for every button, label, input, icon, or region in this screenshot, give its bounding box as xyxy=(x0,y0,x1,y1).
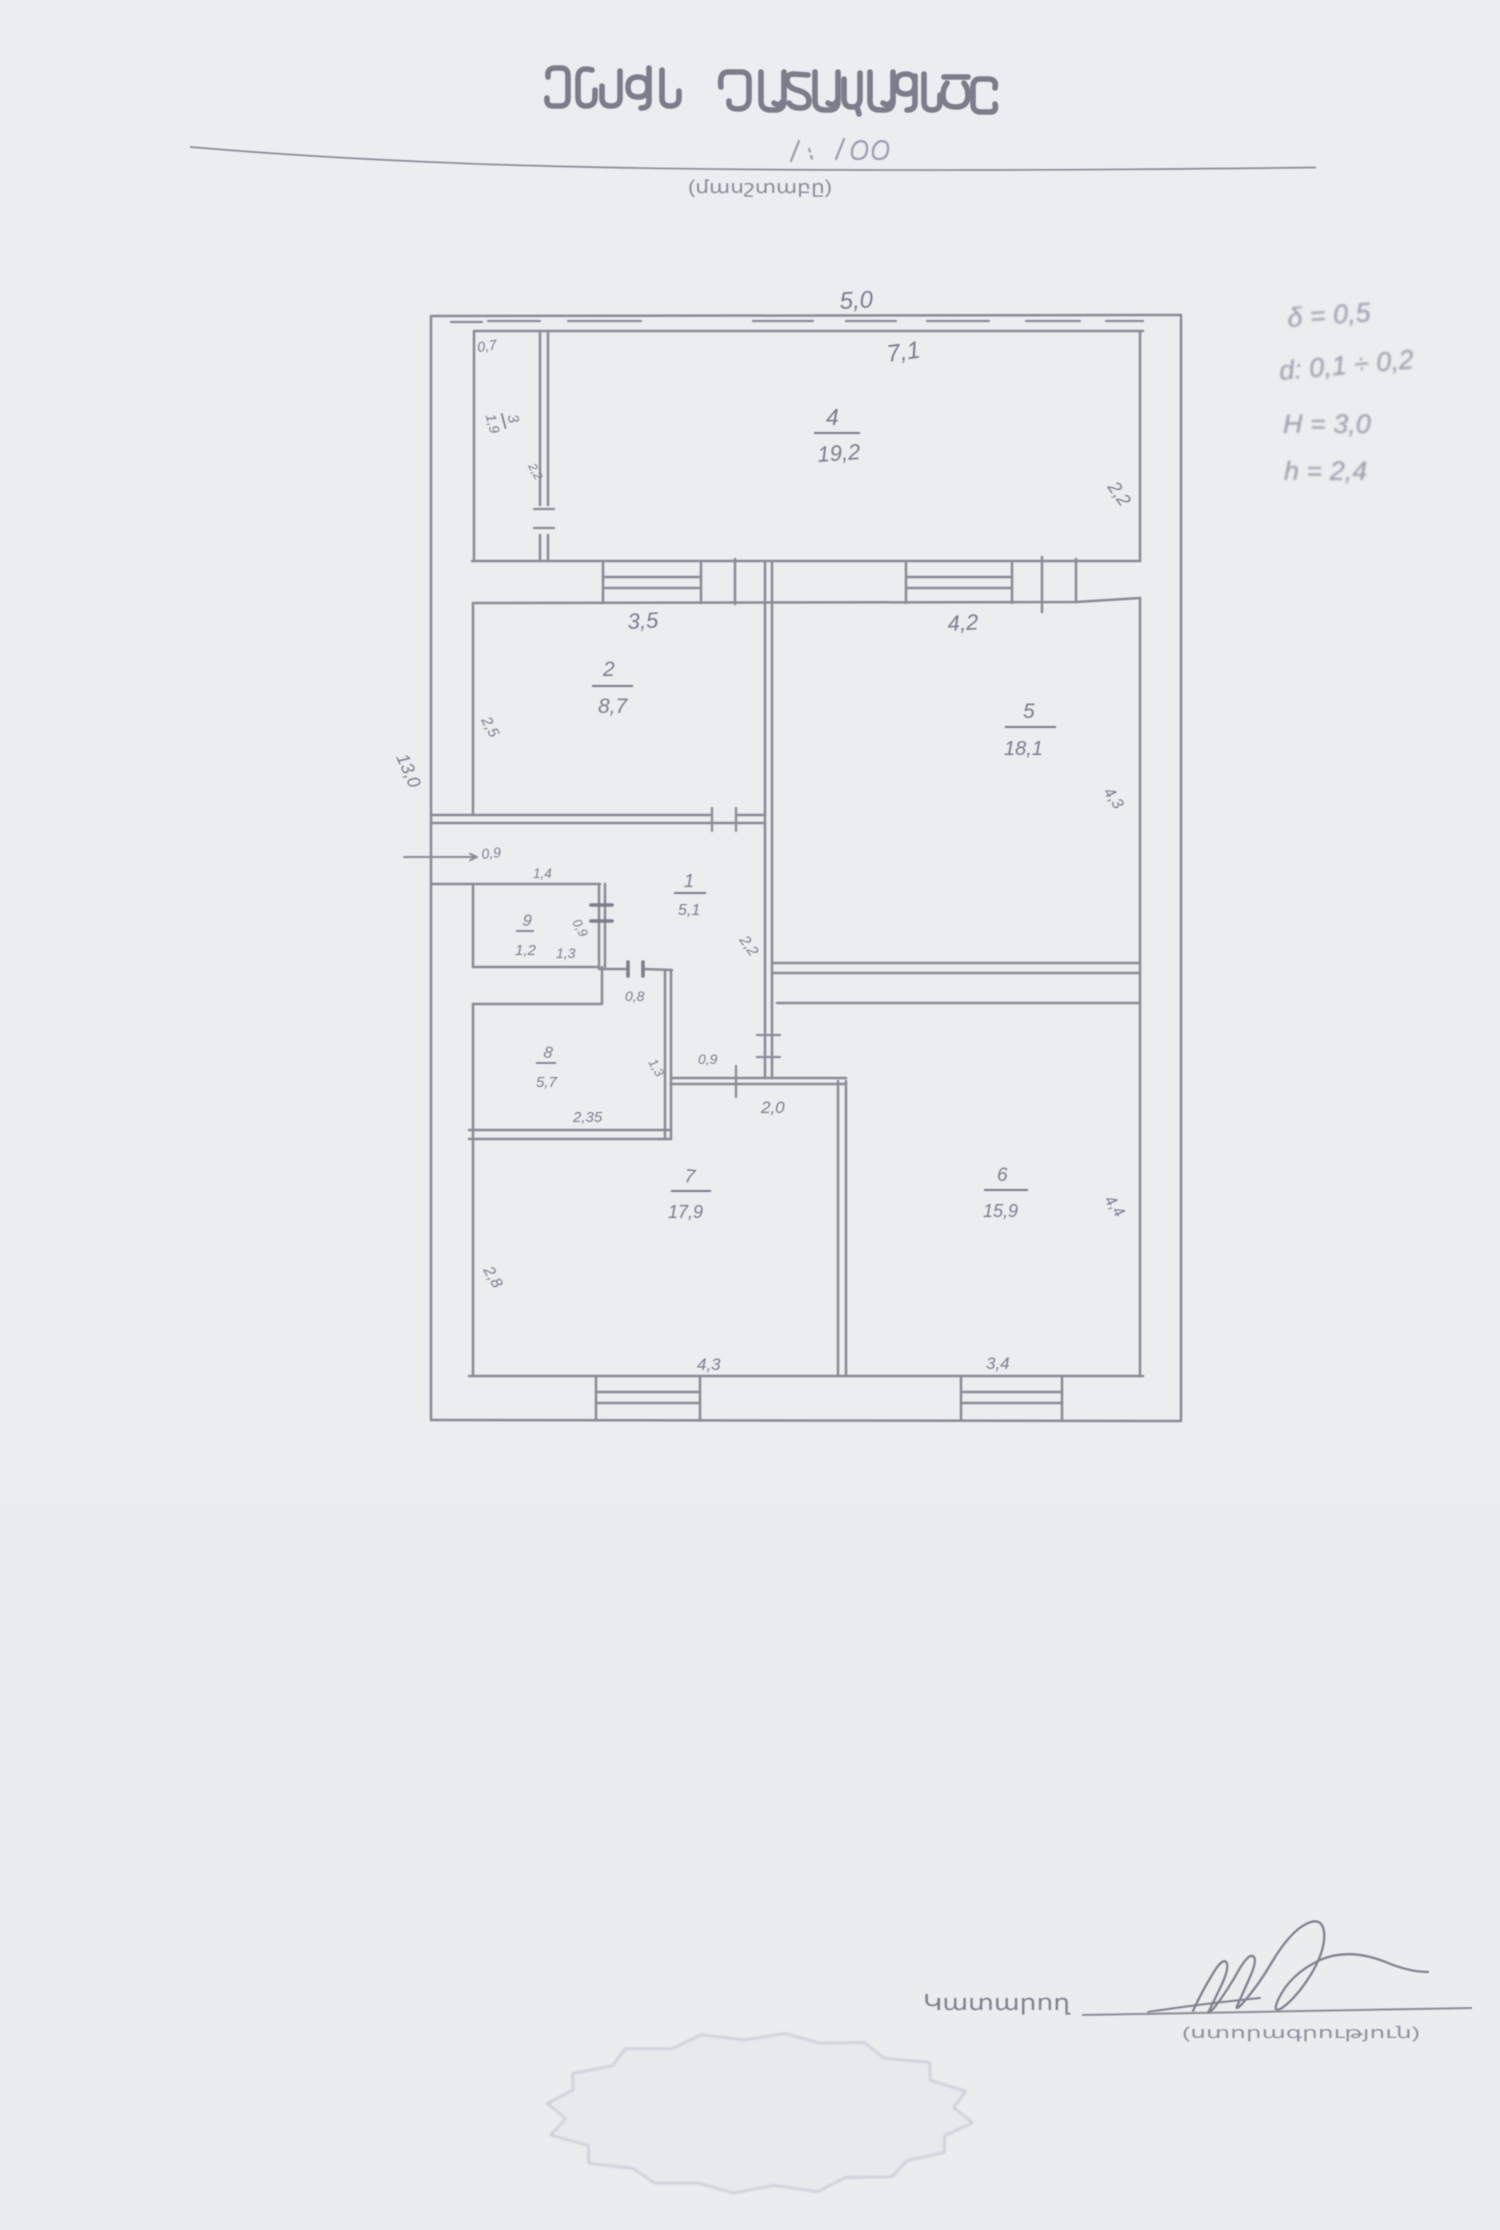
svg-text:3,4: 3,4 xyxy=(986,1354,1010,1373)
svg-text:7,1: 7,1 xyxy=(885,337,922,368)
svg-text:2,35: 2,35 xyxy=(572,1109,603,1126)
svg-text:δ = 0,5: δ = 0,5 xyxy=(1286,297,1372,333)
svg-text:2,0: 2,0 xyxy=(760,1098,785,1117)
svg-text:0,9: 0,9 xyxy=(698,1051,718,1067)
svg-text:8,7: 8,7 xyxy=(598,695,629,718)
svg-text:15,9: 15,9 xyxy=(983,1201,1018,1221)
svg-text:1,3: 1,3 xyxy=(556,945,576,961)
svg-text:0,8: 0,8 xyxy=(625,988,645,1004)
svg-text:H = 3,0: H = 3,0 xyxy=(1283,409,1371,439)
svg-text:5,7: 5,7 xyxy=(536,1074,558,1091)
svg-text:(ստորագրություն): (ստորագրություն) xyxy=(1182,2025,1420,2042)
svg-text:4: 4 xyxy=(826,404,839,430)
svg-text:4,3: 4,3 xyxy=(697,1355,721,1374)
svg-text:4,2: 4,2 xyxy=(947,609,979,636)
svg-text:Կատարող: Կատարող xyxy=(923,1990,1071,2015)
svg-text:0,9: 0,9 xyxy=(481,844,502,862)
svg-text:19,2: 19,2 xyxy=(817,439,861,467)
svg-text:(մասշտաբը): (մասշտաբը) xyxy=(688,177,832,197)
svg-text:0,7: 0,7 xyxy=(476,336,499,355)
svg-text:5,0: 5,0 xyxy=(839,286,874,315)
svg-text:3,5: 3,5 xyxy=(627,607,660,634)
svg-text:5: 5 xyxy=(1023,700,1035,723)
svg-text:1: 1 xyxy=(684,871,694,891)
svg-text:1,4: 1,4 xyxy=(533,866,552,881)
svg-text:17,9: 17,9 xyxy=(668,1202,703,1222)
svg-text:2: 2 xyxy=(602,658,615,681)
svg-text:h = 2,4: h = 2,4 xyxy=(1284,456,1367,486)
svg-text:1,2: 1,2 xyxy=(515,942,537,959)
svg-text:6: 6 xyxy=(997,1165,1008,1186)
svg-text:5,1: 5,1 xyxy=(678,902,700,919)
svg-text:18,1: 18,1 xyxy=(1004,738,1043,760)
